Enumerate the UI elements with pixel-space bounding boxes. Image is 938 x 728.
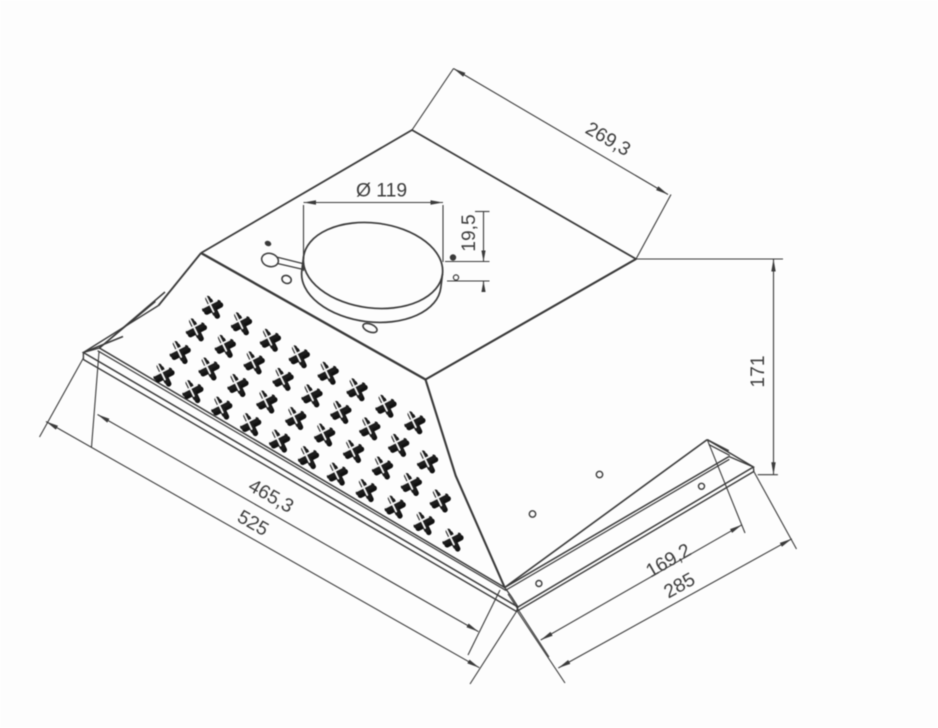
svg-text:Ø 119: Ø 119 bbox=[356, 181, 407, 202]
svg-text:19,5: 19,5 bbox=[459, 214, 480, 252]
svg-text:171: 171 bbox=[748, 355, 769, 387]
